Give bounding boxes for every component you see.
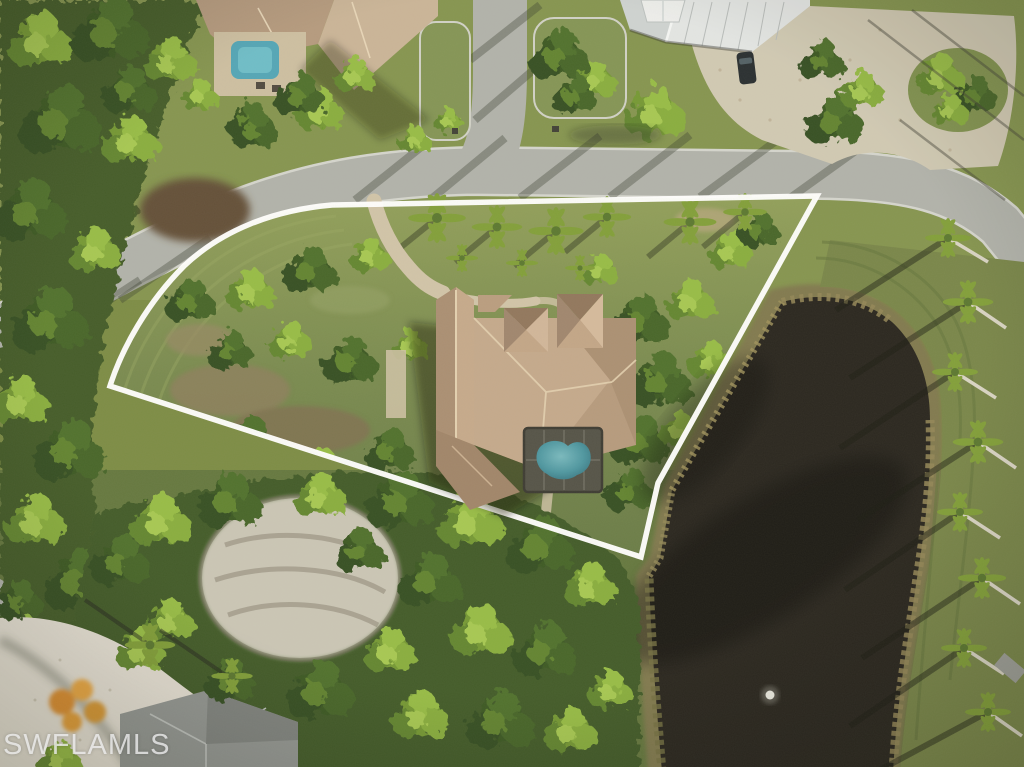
aerial-photo-canvas <box>0 0 1024 767</box>
film-grain <box>0 0 1024 767</box>
watermark: SWFLAMLS <box>3 729 171 762</box>
aerial-photo: SWFLAMLS <box>0 0 1024 767</box>
